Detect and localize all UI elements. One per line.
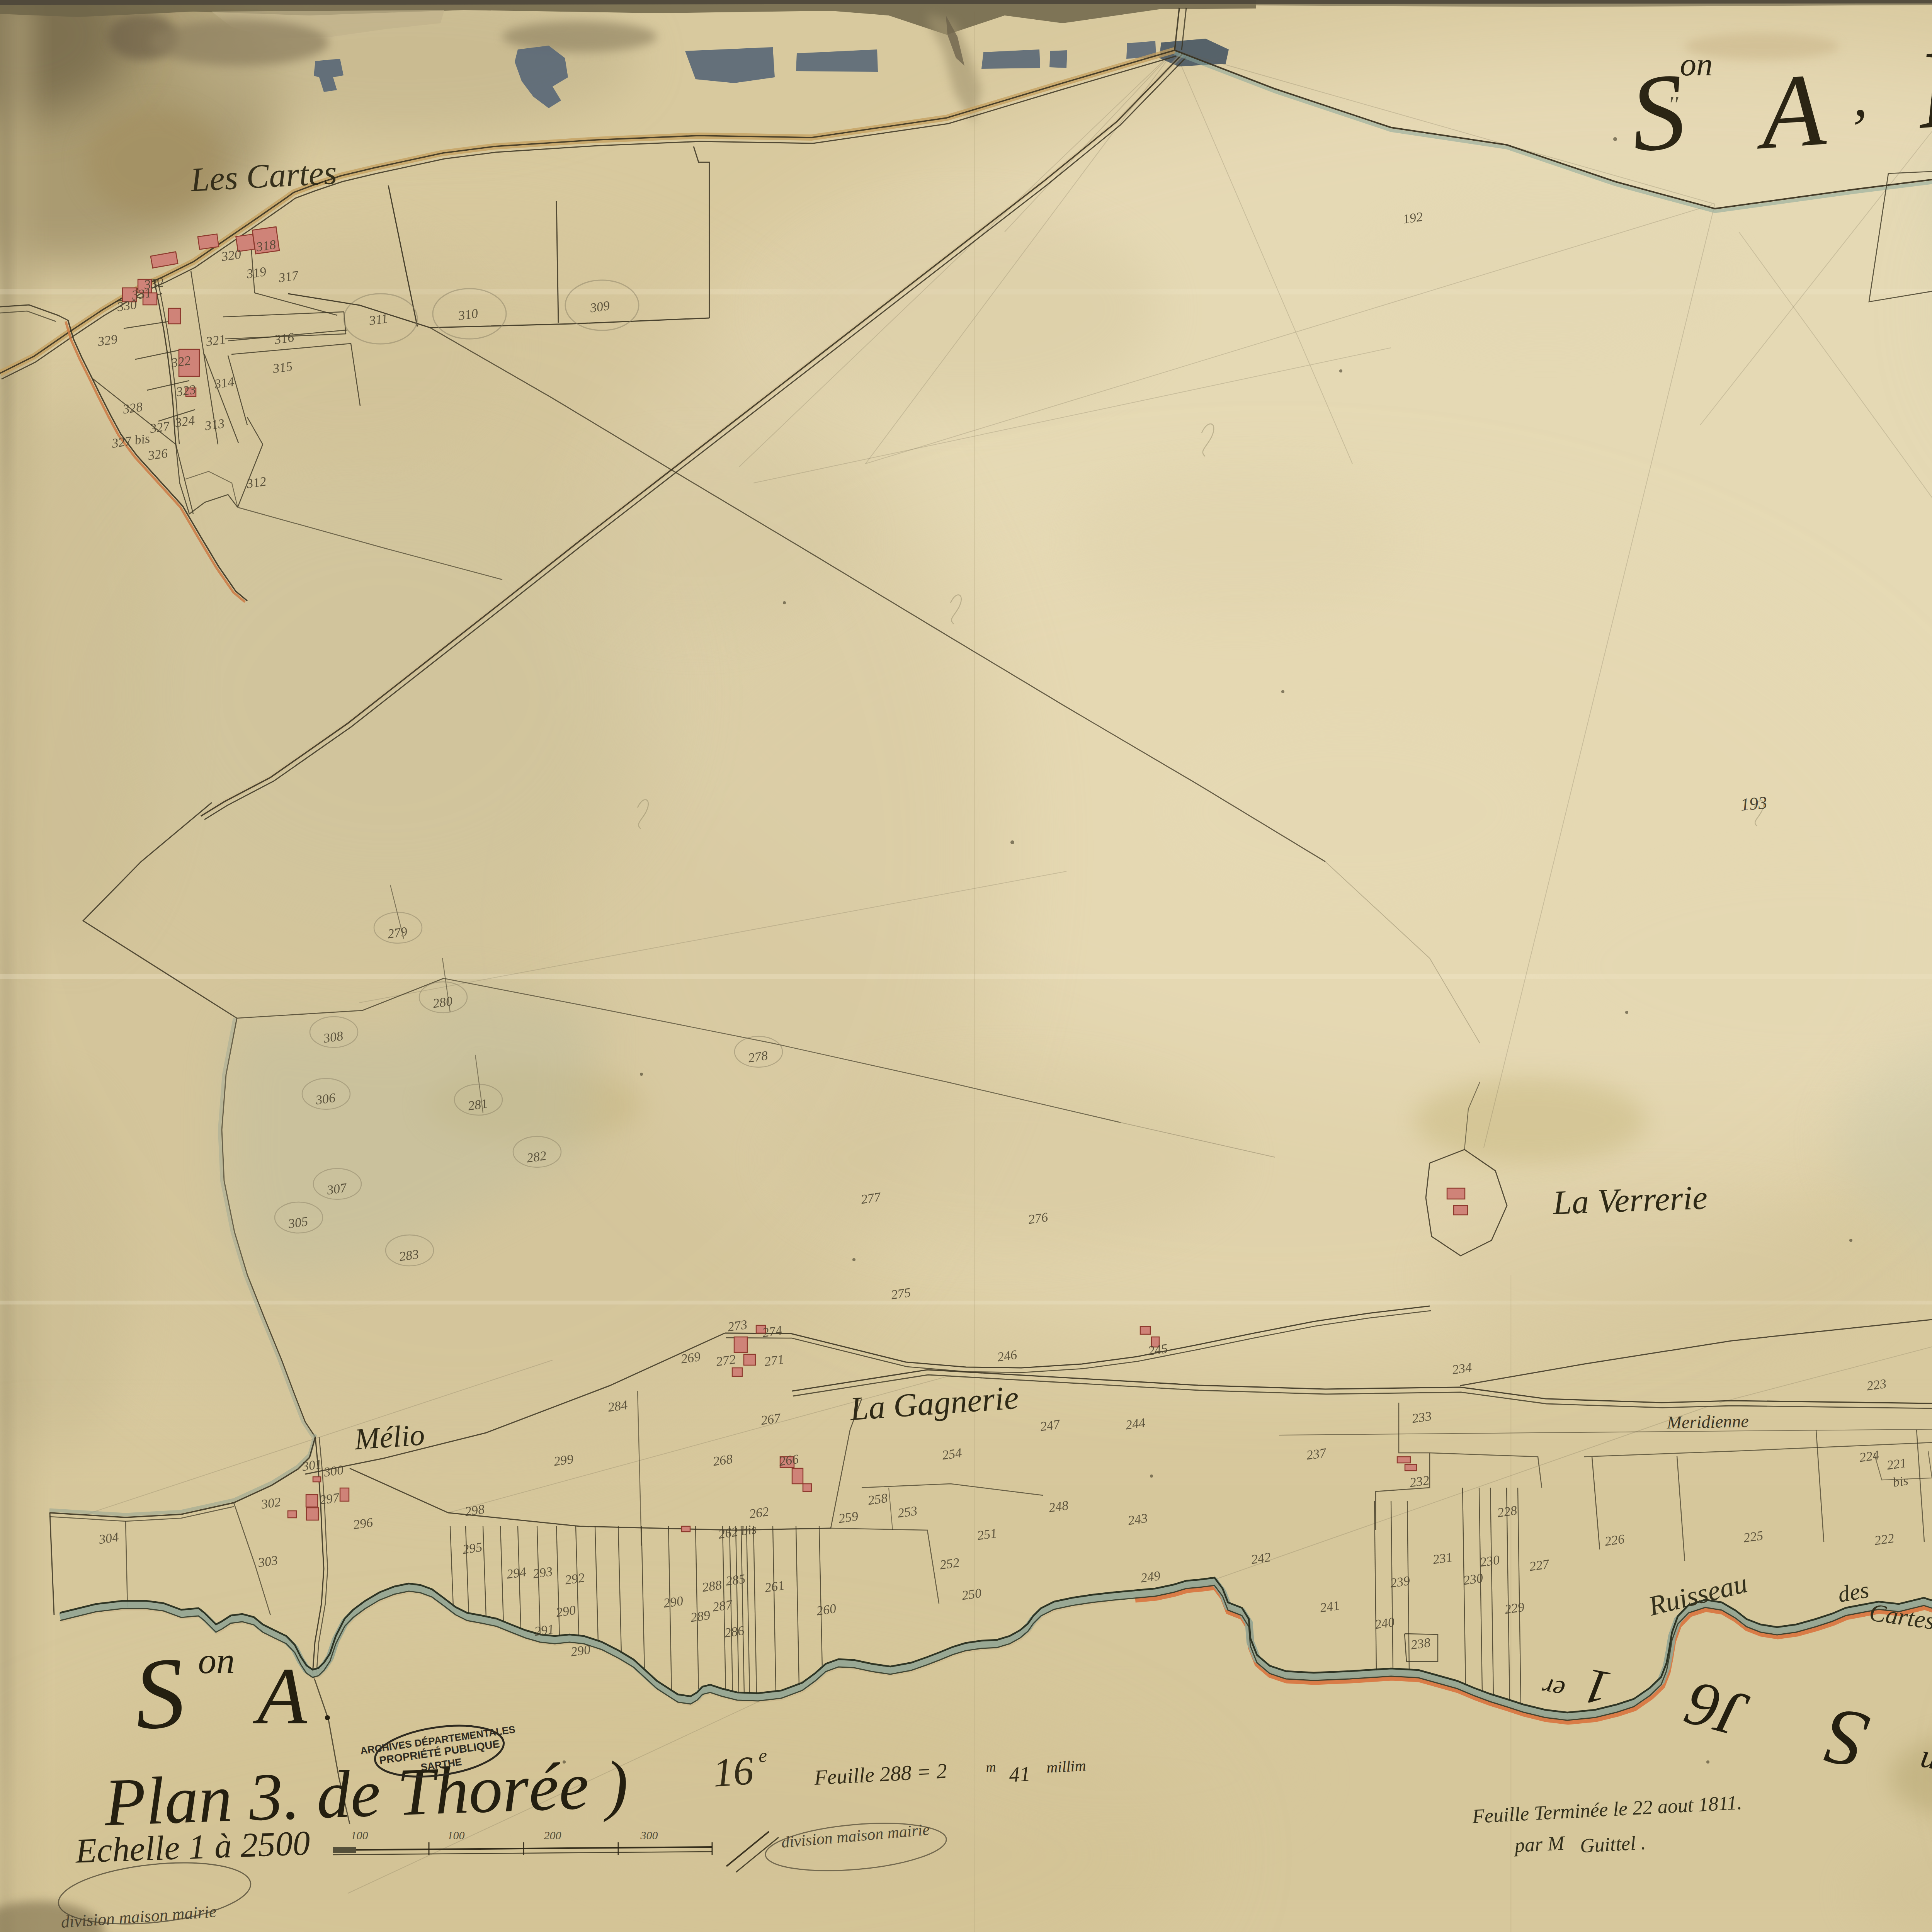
svg-text:,: ,: [1853, 64, 1868, 128]
svg-text:228: 228: [1497, 1503, 1518, 1520]
svg-text:248: 248: [1048, 1498, 1070, 1515]
svg-text:234: 234: [1451, 1360, 1473, 1377]
svg-text:314: 314: [213, 374, 235, 391]
svg-text:243: 243: [1127, 1511, 1149, 1528]
svg-text:247: 247: [1039, 1417, 1062, 1434]
svg-text:193: 193: [1740, 793, 1768, 815]
svg-text:279: 279: [387, 924, 408, 941]
svg-text:par M: par M: [1512, 1832, 1566, 1857]
svg-text:249: 249: [1140, 1568, 1162, 1585]
svg-text:304: 304: [98, 1530, 120, 1547]
svg-text:308: 308: [322, 1029, 344, 1046]
svg-text:′′: ′′: [1668, 92, 1679, 117]
svg-text:276: 276: [1027, 1210, 1049, 1227]
svg-text:251: 251: [976, 1526, 998, 1543]
svg-text:m: m: [985, 1759, 996, 1775]
svg-text:250: 250: [961, 1586, 983, 1603]
svg-text:286: 286: [724, 1623, 745, 1640]
svg-text:222: 222: [1874, 1531, 1895, 1548]
svg-text:272: 272: [715, 1352, 737, 1369]
svg-text:237: 237: [1306, 1445, 1328, 1462]
svg-text:267: 267: [760, 1410, 782, 1427]
svg-text:329: 329: [97, 332, 119, 349]
svg-text:Les Cartes: Les Cartes: [189, 153, 338, 199]
svg-text:311: 311: [368, 311, 389, 328]
svg-text:230: 230: [1463, 1571, 1484, 1588]
svg-text:on: on: [198, 1640, 235, 1681]
svg-text:289: 289: [690, 1608, 711, 1625]
svg-text:258: 258: [867, 1491, 889, 1508]
svg-text:283: 283: [398, 1247, 420, 1264]
svg-text:273: 273: [727, 1317, 748, 1334]
svg-text:259: 259: [838, 1509, 859, 1526]
svg-text:261: 261: [764, 1578, 786, 1595]
svg-text:295: 295: [462, 1540, 483, 1557]
svg-text:239: 239: [1389, 1573, 1411, 1590]
svg-text:288: 288: [701, 1578, 723, 1595]
svg-text:315: 315: [272, 359, 294, 376]
svg-text:.: .: [323, 1682, 334, 1729]
svg-text:224: 224: [1859, 1448, 1880, 1465]
svg-text:294: 294: [506, 1565, 527, 1582]
svg-text:302: 302: [260, 1495, 282, 1512]
svg-text:244: 244: [1125, 1415, 1146, 1432]
svg-text:bis: bis: [1892, 1473, 1909, 1490]
svg-text:281: 281: [467, 1096, 489, 1113]
svg-text:A: A: [253, 1651, 307, 1741]
svg-text:221: 221: [1886, 1456, 1908, 1473]
svg-text:285: 285: [725, 1571, 747, 1588]
svg-text:245: 245: [1147, 1341, 1169, 1358]
svg-text:266: 266: [778, 1452, 800, 1469]
svg-text:192: 192: [1402, 209, 1424, 226]
svg-text:320: 320: [220, 247, 242, 264]
svg-text:324: 324: [174, 413, 196, 430]
svg-text:Meridienne: Meridienne: [1666, 1411, 1749, 1432]
svg-text:282: 282: [526, 1148, 548, 1165]
svg-text:238: 238: [1410, 1635, 1432, 1652]
svg-text:229: 229: [1504, 1600, 1526, 1617]
svg-text:246: 246: [997, 1347, 1018, 1364]
svg-text:271: 271: [764, 1352, 785, 1369]
svg-text:290: 290: [663, 1594, 684, 1611]
svg-text:287: 287: [712, 1597, 734, 1614]
svg-text:322: 322: [170, 353, 192, 370]
svg-text:291: 291: [534, 1622, 555, 1639]
svg-text:226: 226: [1604, 1532, 1626, 1549]
svg-text:317: 317: [277, 268, 300, 285]
svg-text:227: 227: [1529, 1556, 1551, 1573]
svg-text:307: 307: [326, 1180, 349, 1197]
svg-text:200: 200: [544, 1829, 561, 1842]
svg-text:300: 300: [640, 1829, 658, 1842]
svg-text:275: 275: [890, 1285, 912, 1302]
svg-text:318: 318: [255, 237, 277, 254]
svg-text:253: 253: [897, 1503, 918, 1520]
svg-text:Guittel .: Guittel .: [1579, 1832, 1646, 1857]
svg-text:La Verrerie: La Verrerie: [1551, 1179, 1708, 1221]
svg-text:241: 241: [1319, 1598, 1341, 1615]
svg-text:240: 240: [1374, 1615, 1396, 1632]
svg-text:on: on: [1680, 46, 1713, 82]
svg-text:242: 242: [1250, 1550, 1272, 1567]
svg-text:278: 278: [747, 1048, 769, 1065]
svg-text:16: 16: [711, 1748, 755, 1796]
svg-text:301: 301: [301, 1457, 323, 1474]
svg-text:332: 332: [143, 275, 165, 292]
svg-text:225: 225: [1743, 1528, 1764, 1545]
svg-text:233: 233: [1411, 1409, 1433, 1426]
svg-text:252: 252: [939, 1555, 961, 1572]
svg-text:328: 328: [122, 400, 144, 417]
svg-text:313: 313: [204, 416, 226, 433]
svg-text:254: 254: [941, 1446, 963, 1463]
svg-text:303: 303: [257, 1553, 279, 1570]
svg-text:306: 306: [315, 1090, 337, 1107]
svg-text:298: 298: [464, 1502, 486, 1519]
svg-text:300: 300: [323, 1463, 345, 1480]
svg-text:296: 296: [352, 1515, 374, 1532]
svg-text:41: 41: [1009, 1762, 1031, 1787]
svg-text:100: 100: [351, 1829, 368, 1842]
svg-text:millim: millim: [1046, 1757, 1086, 1776]
svg-text:299: 299: [553, 1452, 575, 1469]
svg-text:309: 309: [589, 298, 611, 315]
svg-text:262: 262: [748, 1504, 770, 1521]
svg-text:293: 293: [532, 1564, 554, 1581]
svg-text:297: 297: [319, 1490, 341, 1507]
svg-text:321: 321: [205, 332, 227, 349]
svg-text:269: 269: [680, 1349, 702, 1366]
svg-text:e: e: [758, 1744, 768, 1766]
svg-text:305: 305: [287, 1214, 309, 1231]
svg-text:des: des: [1836, 1577, 1871, 1607]
svg-text:100: 100: [447, 1829, 465, 1842]
svg-text:223: 223: [1866, 1376, 1888, 1393]
svg-text:327: 327: [149, 418, 172, 435]
svg-text:316: 316: [273, 330, 295, 347]
svg-text:319: 319: [245, 264, 267, 281]
svg-text:268: 268: [712, 1452, 734, 1469]
svg-text:277: 277: [860, 1189, 883, 1206]
svg-text:284: 284: [607, 1398, 629, 1415]
svg-text:323: 323: [175, 382, 197, 399]
svg-text:280: 280: [432, 994, 454, 1011]
svg-text:292: 292: [564, 1570, 586, 1587]
svg-text:260: 260: [816, 1601, 837, 1618]
svg-text:310: 310: [457, 306, 479, 323]
svg-text:312: 312: [245, 474, 267, 491]
svg-text:231: 231: [1432, 1550, 1454, 1567]
svg-text:S: S: [129, 1636, 189, 1751]
svg-text:230: 230: [1479, 1553, 1501, 1570]
svg-text:232: 232: [1409, 1473, 1430, 1490]
svg-text:274: 274: [762, 1323, 783, 1340]
svg-text:290: 290: [570, 1642, 592, 1659]
svg-text:290: 290: [555, 1603, 577, 1620]
svg-text:326: 326: [147, 446, 169, 463]
